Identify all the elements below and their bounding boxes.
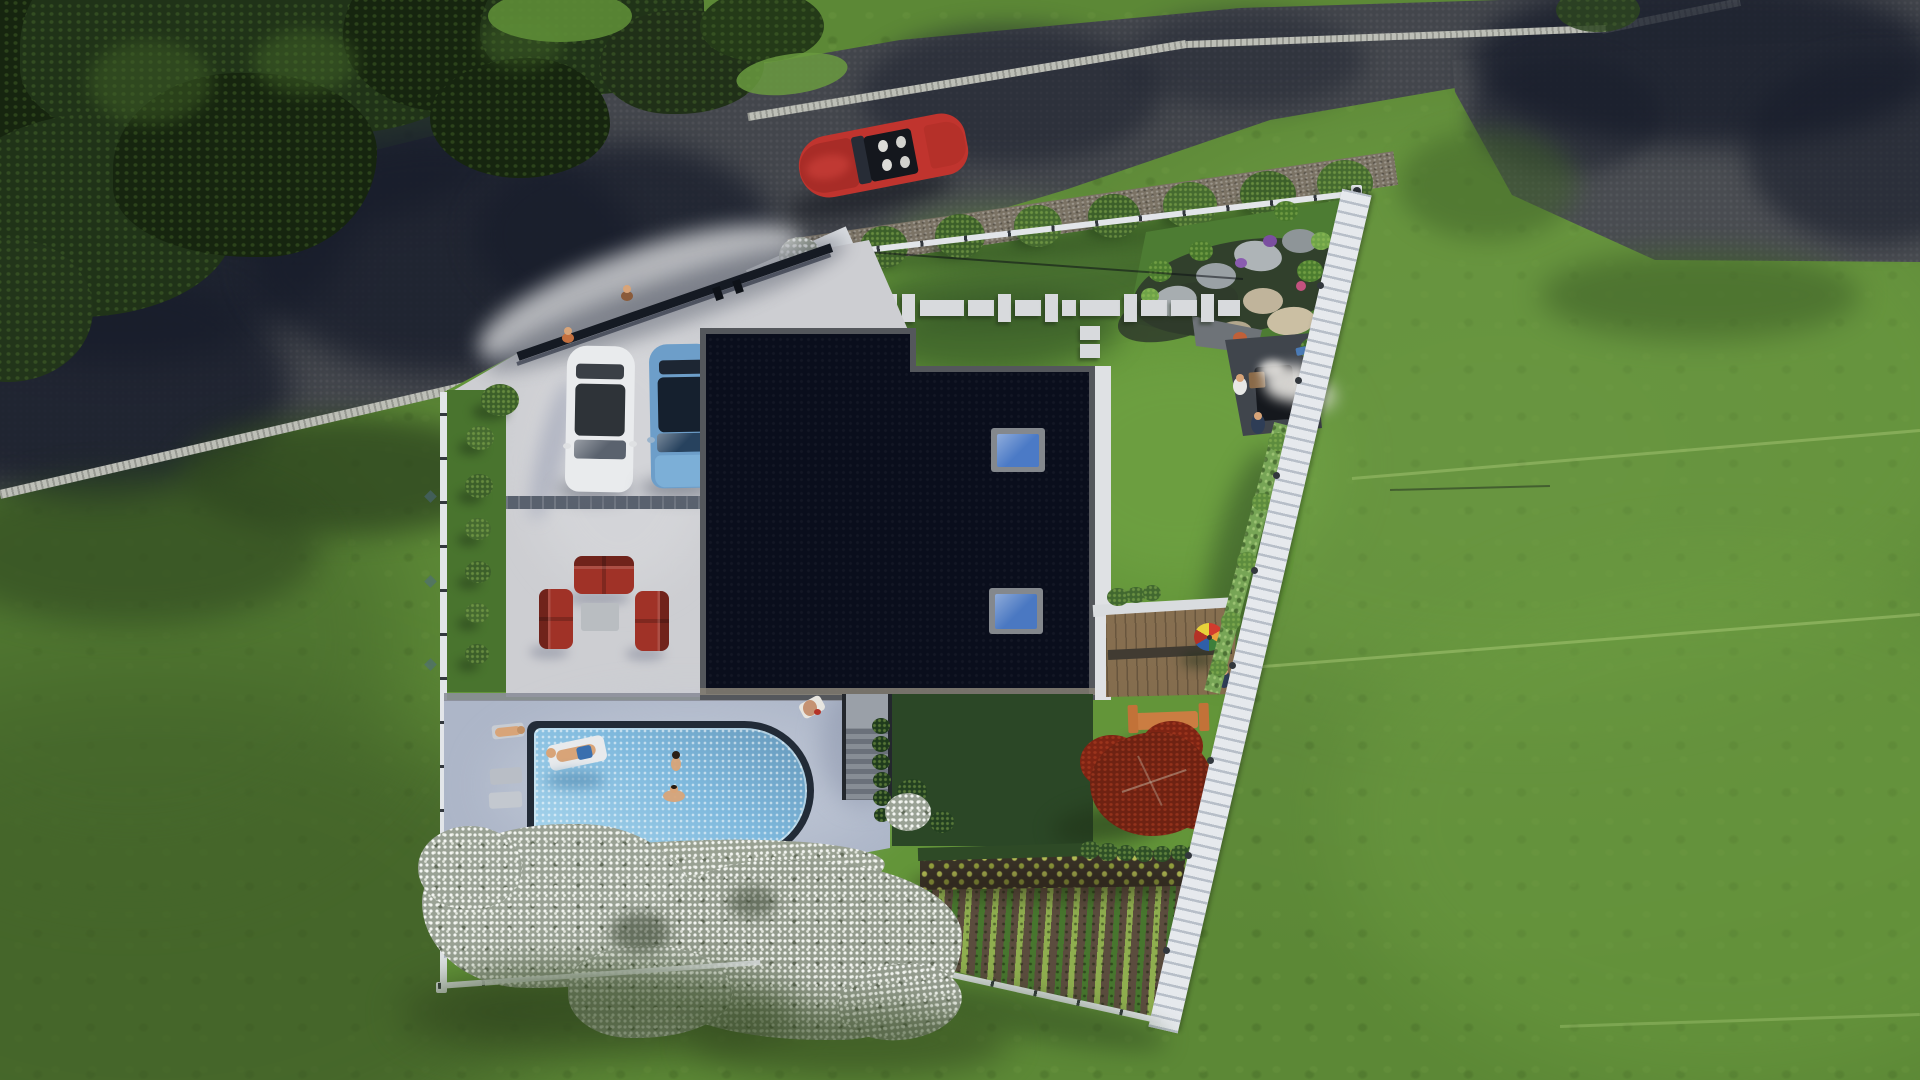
- rock-plant-3: [1297, 260, 1323, 282]
- aerial-site-plan-render: [0, 0, 1920, 1080]
- person-north-1-head: [564, 327, 572, 335]
- white-car-windshield: [574, 440, 626, 460]
- paver: [1171, 300, 1197, 316]
- canopy-highlight-2: [253, 30, 357, 94]
- wall-post-cap: [1229, 662, 1236, 669]
- walkway-hedge-clump: [1210, 660, 1228, 676]
- paver-branch: [1080, 326, 1100, 340]
- skylight-1-glass: [997, 434, 1039, 467]
- coffee-table: [581, 603, 619, 631]
- parasol-center: [1207, 635, 1212, 640]
- wall-post-cap: [1273, 472, 1280, 479]
- paver: [1201, 294, 1214, 322]
- white-car-rear-glass: [576, 364, 624, 380]
- tree-shadow-field-2: [1398, 130, 1578, 240]
- tree-shadow-road-7: [1125, 10, 1365, 110]
- wall-post-cap: [1317, 282, 1324, 289]
- wall-post-cap: [1185, 852, 1192, 859]
- car-seat-3: [896, 136, 906, 148]
- paver: [920, 300, 964, 316]
- garden-top-shade: [910, 868, 1190, 900]
- paver-branch: [1080, 344, 1100, 358]
- canopy-highlight-1: [88, 40, 212, 124]
- paver: [1080, 300, 1120, 316]
- boxwood-bush: [466, 426, 494, 450]
- gravel-bush-5: [1163, 182, 1217, 228]
- flower-bush-small: [885, 793, 931, 831]
- boxwood-bush: [465, 518, 491, 540]
- flower-purple-1: [1263, 235, 1277, 247]
- outdoor-sofa: [574, 556, 634, 594]
- hedge-row-ball: [1098, 843, 1118, 861]
- outdoor-armchair-right: [635, 591, 669, 651]
- swimmer-1-body: [671, 757, 681, 771]
- blue-car-mirror-left: [647, 437, 655, 443]
- wall-post-cap: [1295, 377, 1302, 384]
- paver: [1124, 294, 1137, 322]
- hedge-ball: [872, 754, 890, 770]
- swimmer-1-head: [672, 751, 680, 759]
- flowers-shadow-2: [690, 1006, 1010, 1078]
- outdoor-armchair-left: [539, 589, 573, 649]
- person-bbq-1-head: [1236, 374, 1244, 382]
- wall-post-cap: [1251, 567, 1258, 574]
- paver: [998, 294, 1011, 322]
- hedge-ball: [872, 736, 890, 752]
- flower-pink: [1296, 281, 1306, 291]
- flower-gap-1: [610, 912, 670, 952]
- blue-car-windshield: [657, 433, 707, 453]
- paver: [1045, 294, 1058, 322]
- paver: [902, 294, 915, 322]
- sunbather-head: [517, 726, 525, 734]
- hedge-row-ball: [1117, 845, 1135, 861]
- picnic-bench-left: [1128, 705, 1139, 733]
- boxwood-bush: [481, 384, 519, 416]
- car-seat-2: [882, 159, 892, 171]
- grill-smoke-3: [1259, 360, 1285, 378]
- paver: [968, 300, 994, 316]
- lounger-mat-3: [489, 791, 523, 809]
- person-north-2-head: [623, 285, 631, 293]
- flower-gap-2: [727, 886, 777, 918]
- car-seat-4: [900, 156, 910, 168]
- tree-shadow-field-1: [1540, 250, 1860, 340]
- boxwood-bush: [465, 603, 489, 623]
- hedge-row-ball: [1135, 846, 1153, 862]
- blue-car-roof-glass: [658, 377, 707, 433]
- shaded-bush-2: [930, 811, 954, 833]
- flower-purple-2: [1235, 258, 1247, 268]
- lounger-mat-2: [489, 767, 522, 785]
- swimmer-2-hair: [671, 785, 677, 789]
- car-seat-1: [878, 140, 888, 152]
- sitting-person-item: [814, 709, 821, 715]
- float-shadow: [545, 771, 605, 789]
- forest-canopy: [430, 58, 610, 178]
- paver: [1141, 300, 1167, 316]
- person-bbq-2-head: [1254, 412, 1262, 420]
- rock-plant-5: [1274, 201, 1298, 221]
- paver: [1062, 300, 1076, 316]
- hedge-ball: [872, 718, 890, 734]
- boxwood-bush: [465, 474, 493, 498]
- float-person-head: [546, 748, 556, 758]
- planter-bush-3: [1143, 585, 1161, 601]
- rock-plant-2: [1189, 241, 1213, 261]
- wall-post-cap: [1207, 757, 1214, 764]
- red-convertible-cockpit: [863, 128, 919, 182]
- flower-lobe-nw: [418, 826, 522, 910]
- walkway-hedge-clump: [1221, 612, 1241, 630]
- white-car-roof-glass: [575, 384, 626, 437]
- wall-post-cap: [1163, 947, 1170, 954]
- hedge-ball: [873, 772, 891, 788]
- white-car-mirror-right: [629, 441, 637, 447]
- white-car-mirror-left: [563, 443, 571, 449]
- skylight-2-glass: [995, 594, 1037, 629]
- picnic-bench-right: [1199, 703, 1210, 731]
- hedge-row-ball: [1153, 846, 1171, 862]
- paver: [1218, 300, 1240, 316]
- boxwood-bush: [465, 561, 491, 583]
- hedge-row-ball: [1080, 841, 1100, 859]
- boxwood-bush: [465, 644, 489, 664]
- blue-car-rear-glass: [659, 360, 707, 375]
- stairs-rail-left: [842, 694, 846, 800]
- paver: [1015, 300, 1041, 316]
